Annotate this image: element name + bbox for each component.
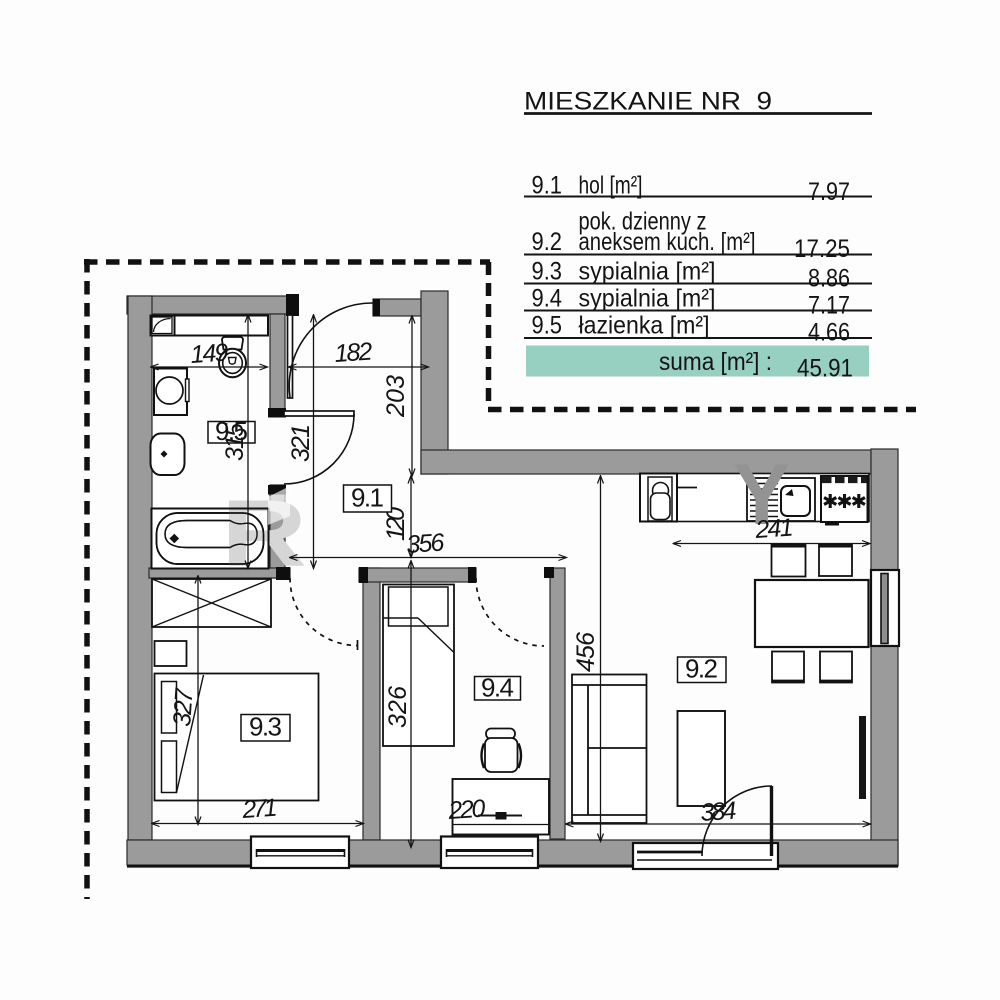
svg-text:203: 203 <box>382 375 410 418</box>
svg-text:9.1: 9.1 <box>532 172 563 200</box>
svg-text:9.1: 9.1 <box>351 483 384 513</box>
svg-text:9.3: 9.3 <box>532 258 563 286</box>
svg-text:149: 149 <box>189 338 229 369</box>
svg-text:315: 315 <box>221 423 249 461</box>
svg-text:MIESZKANIE NR 9: MIESZKANIE NR 9 <box>524 88 772 116</box>
svg-text:sypialnia [m²]: sypialnia [m²] <box>579 285 716 313</box>
svg-text:17.25: 17.25 <box>794 235 850 263</box>
svg-text:327: 327 <box>168 686 199 727</box>
svg-text:suma [m²] :: suma [m²] : <box>659 348 772 376</box>
svg-text:7.97: 7.97 <box>808 178 850 206</box>
svg-text:9.4: 9.4 <box>532 285 563 313</box>
svg-text:9.5: 9.5 <box>532 312 563 340</box>
svg-text:łazienka [m²]: łazienka [m²] <box>579 312 710 340</box>
svg-text:241: 241 <box>753 513 794 544</box>
svg-text:sypialnia [m²]: sypialnia [m²] <box>579 258 716 286</box>
svg-text:9.3: 9.3 <box>249 712 282 742</box>
svg-text:45.91: 45.91 <box>797 355 853 383</box>
svg-text:321: 321 <box>287 424 315 462</box>
svg-text:7.17: 7.17 <box>808 292 850 320</box>
svg-text:182: 182 <box>333 337 373 368</box>
svg-text:9.4: 9.4 <box>481 673 514 703</box>
svg-text:356: 356 <box>405 528 445 559</box>
svg-text:456: 456 <box>572 632 600 672</box>
svg-text:8.86: 8.86 <box>808 265 850 293</box>
svg-text:9.2: 9.2 <box>685 654 718 684</box>
svg-text:9.2: 9.2 <box>532 228 563 256</box>
svg-text:220: 220 <box>446 794 486 825</box>
svg-text:aneksem kuch. [m²]: aneksem kuch. [m²] <box>579 228 756 256</box>
svg-text:271: 271 <box>240 794 278 824</box>
svg-text:384: 384 <box>699 797 737 827</box>
svg-text:4.66: 4.66 <box>808 319 850 347</box>
svg-text:hol [m²]: hol [m²] <box>579 172 643 200</box>
svg-text:326: 326 <box>384 686 412 728</box>
